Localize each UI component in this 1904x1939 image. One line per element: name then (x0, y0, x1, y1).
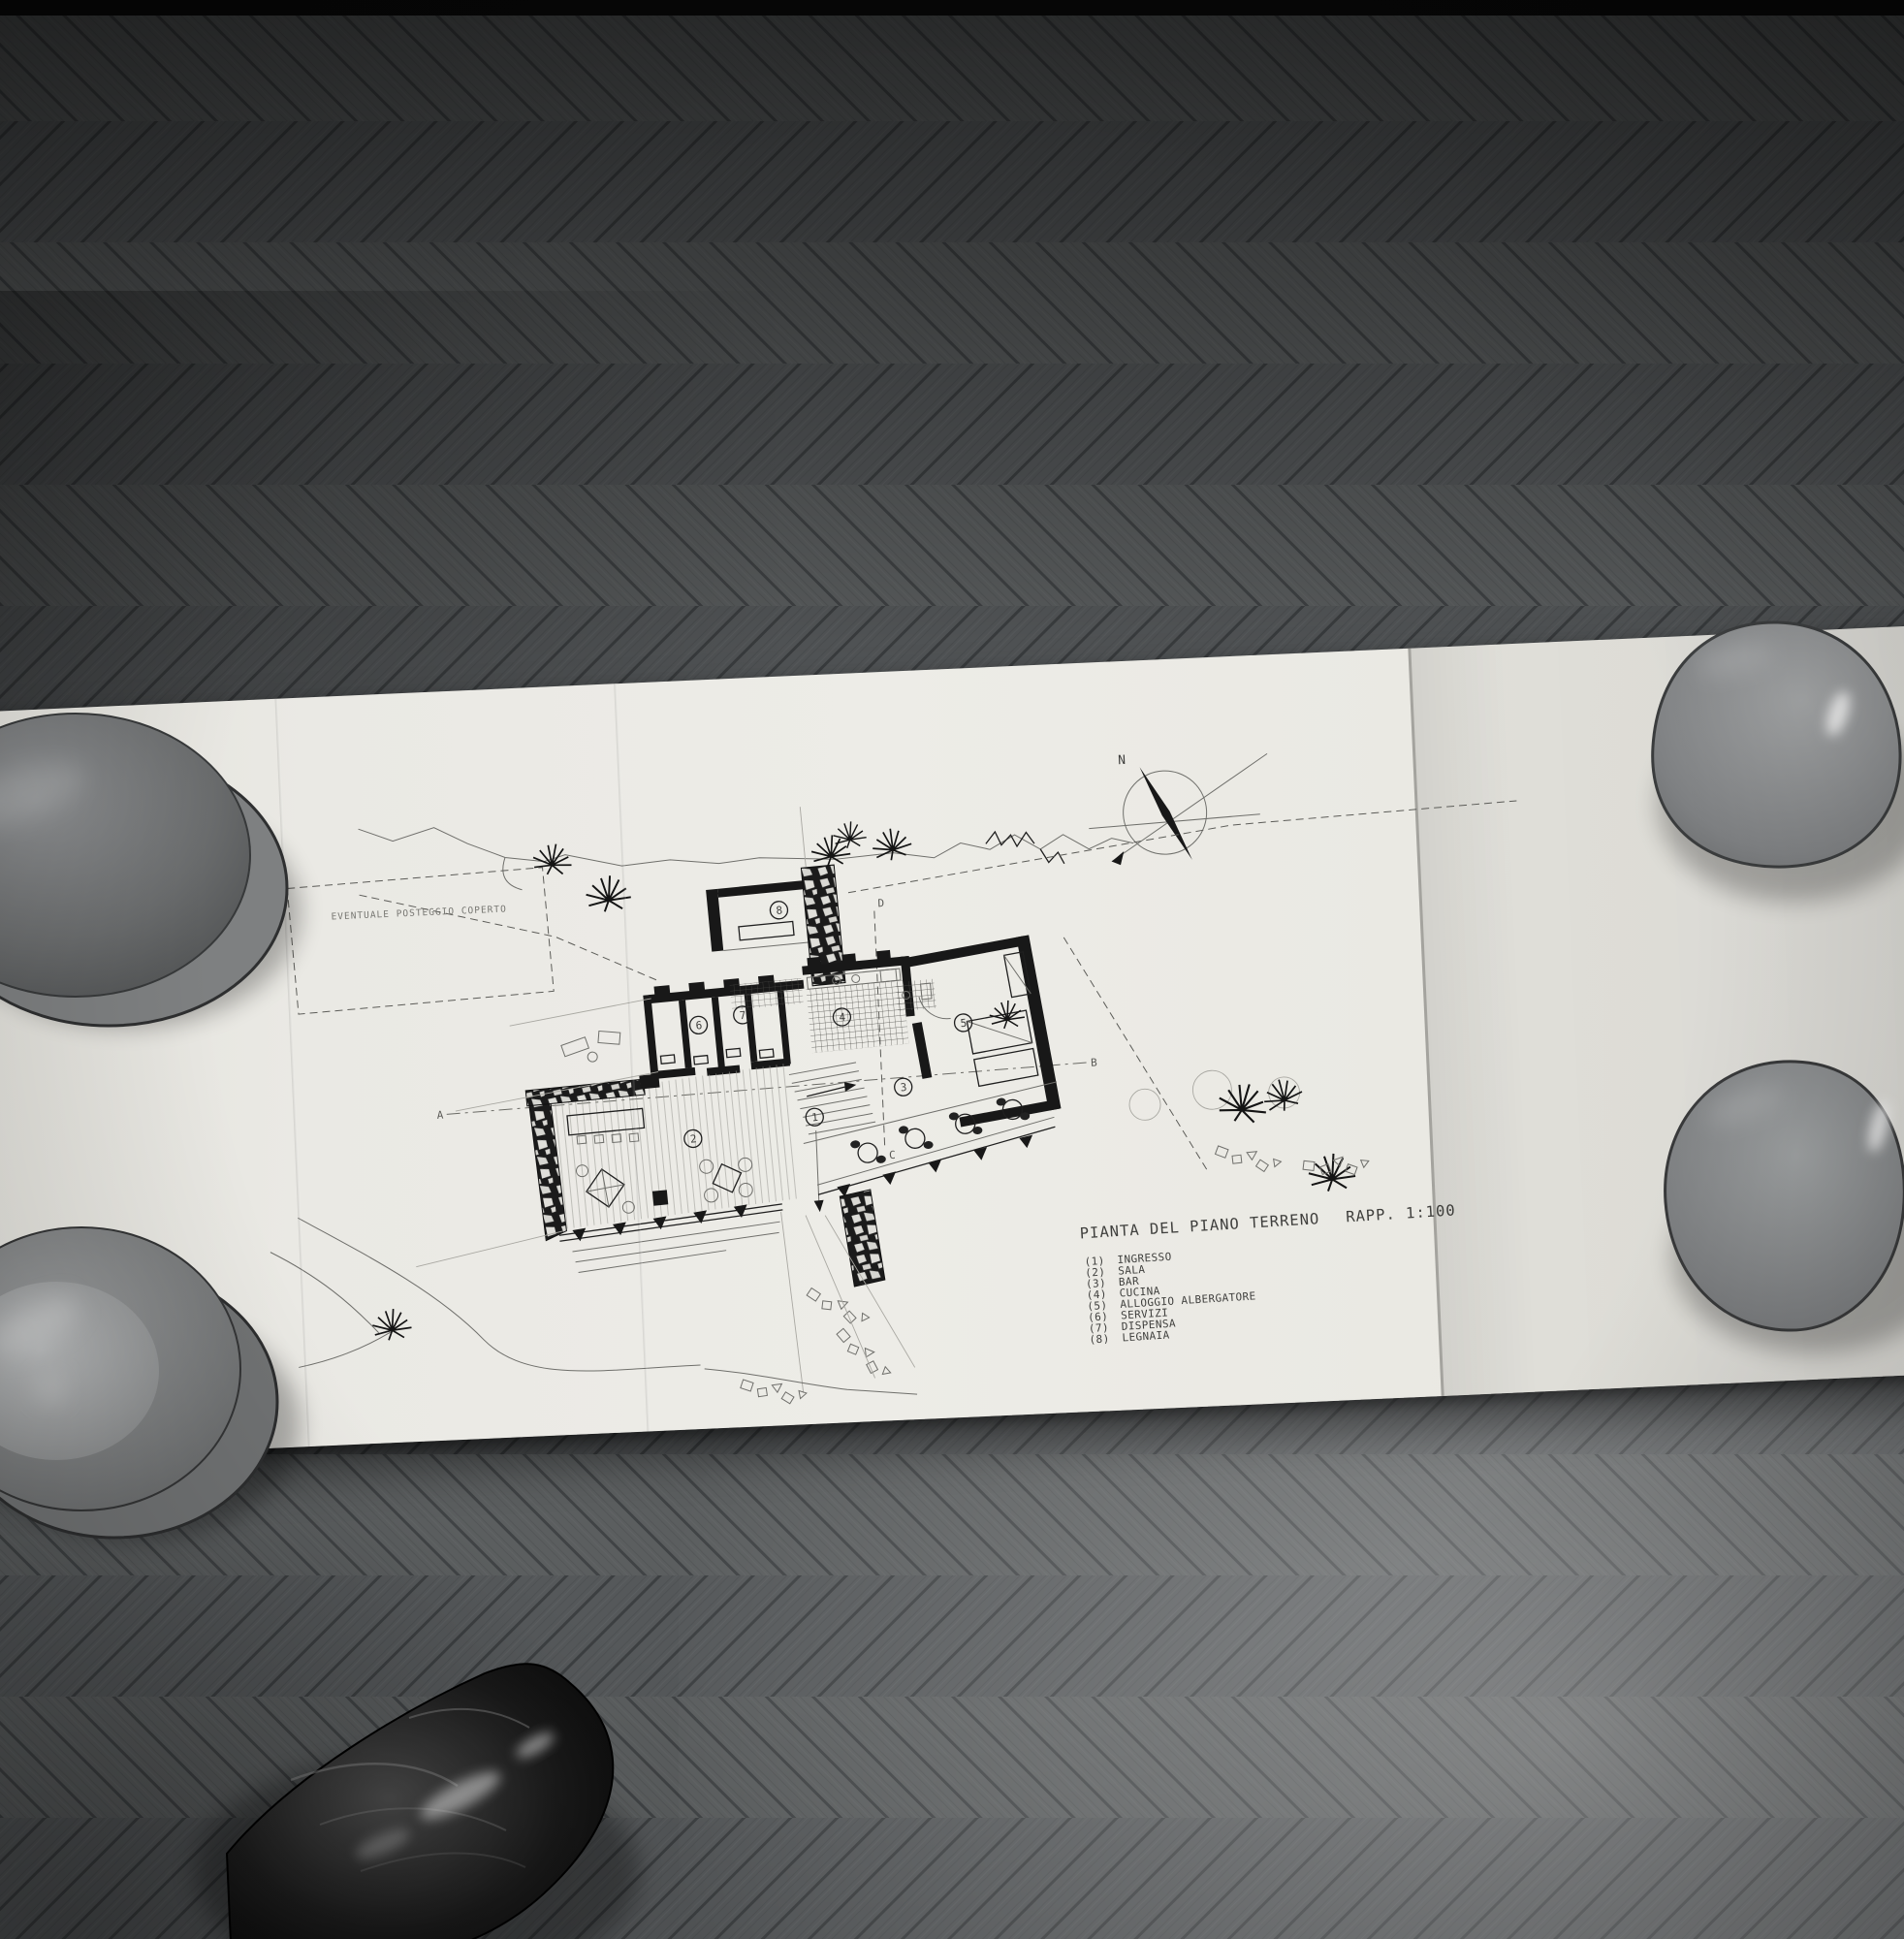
paperweight-bowl-top-left (0, 714, 301, 1028)
photo-scene: N A B C D EVENTUALE POSTEGGIO COPERTO (0, 0, 1904, 1939)
foreground-objects (0, 0, 1904, 1939)
shoe-toe (194, 1664, 640, 1939)
paperweight-bowl-bottom-left (0, 1227, 301, 1542)
paperweight-bowl-bottom-right (1666, 1062, 1904, 1353)
paperweight-bowl-top-right (1653, 622, 1904, 902)
